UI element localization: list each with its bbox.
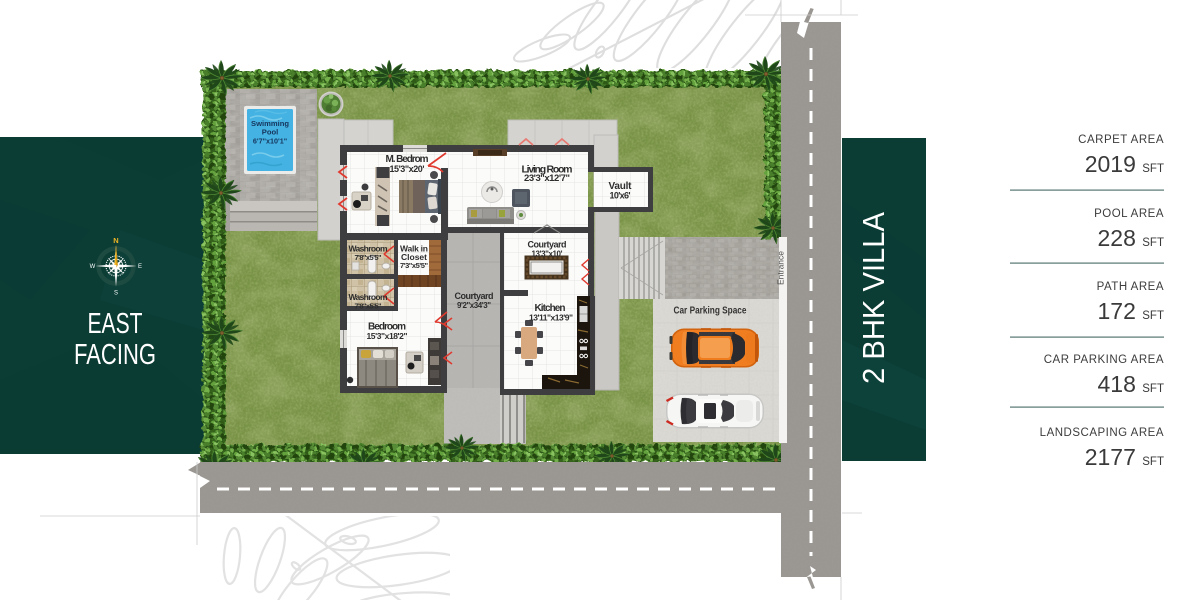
svg-text:FACING: FACING xyxy=(74,339,156,371)
svg-text:PATH AREA: PATH AREA xyxy=(1097,281,1164,293)
svg-text:7'8"x5'5": 7'8"x5'5" xyxy=(355,302,382,311)
svg-text:Washroom: Washroom xyxy=(349,292,388,302)
svg-text:Pool: Pool xyxy=(262,128,278,137)
svg-text:LANDSCAPING AREA: LANDSCAPING AREA xyxy=(1040,427,1164,439)
svg-text:CARPET AREA: CARPET AREA xyxy=(1078,134,1164,146)
svg-text:E: E xyxy=(138,264,142,270)
svg-text:Washroom: Washroom xyxy=(349,244,388,254)
svg-text:S: S xyxy=(114,291,118,297)
svg-text:EAST: EAST xyxy=(88,308,143,340)
svg-text:10'x6': 10'x6' xyxy=(610,191,631,201)
svg-text:7'8"x5'5": 7'8"x5'5" xyxy=(355,253,382,262)
svg-text:2 BHK VILLA: 2 BHK VILLA xyxy=(856,212,891,384)
svg-text:13'3"x10': 13'3"x10' xyxy=(532,250,563,259)
svg-text:Entrance: Entrance xyxy=(776,251,786,285)
svg-text:POOL AREA: POOL AREA xyxy=(1094,208,1164,220)
svg-text:6'7"x10'1": 6'7"x10'1" xyxy=(253,137,287,146)
svg-text:15'3"x18'2": 15'3"x18'2" xyxy=(367,331,408,341)
svg-text:W: W xyxy=(90,264,96,270)
svg-text:23'3"x12'7": 23'3"x12'7" xyxy=(524,173,570,184)
svg-text:Courtyard: Courtyard xyxy=(528,240,567,250)
svg-text:Car Parking Space: Car Parking Space xyxy=(674,306,747,317)
svg-text:13'11"x13'9": 13'11"x13'9" xyxy=(529,313,573,323)
svg-text:CAR PARKING AREA: CAR PARKING AREA xyxy=(1044,354,1164,366)
svg-text:Courtyard: Courtyard xyxy=(455,291,494,301)
svg-text:7'3"x5'5": 7'3"x5'5" xyxy=(400,261,428,270)
svg-text:9'2"x34'3": 9'2"x34'3" xyxy=(457,301,491,310)
svg-text:N: N xyxy=(113,236,118,245)
svg-text:15'3"x20': 15'3"x20' xyxy=(390,164,425,174)
